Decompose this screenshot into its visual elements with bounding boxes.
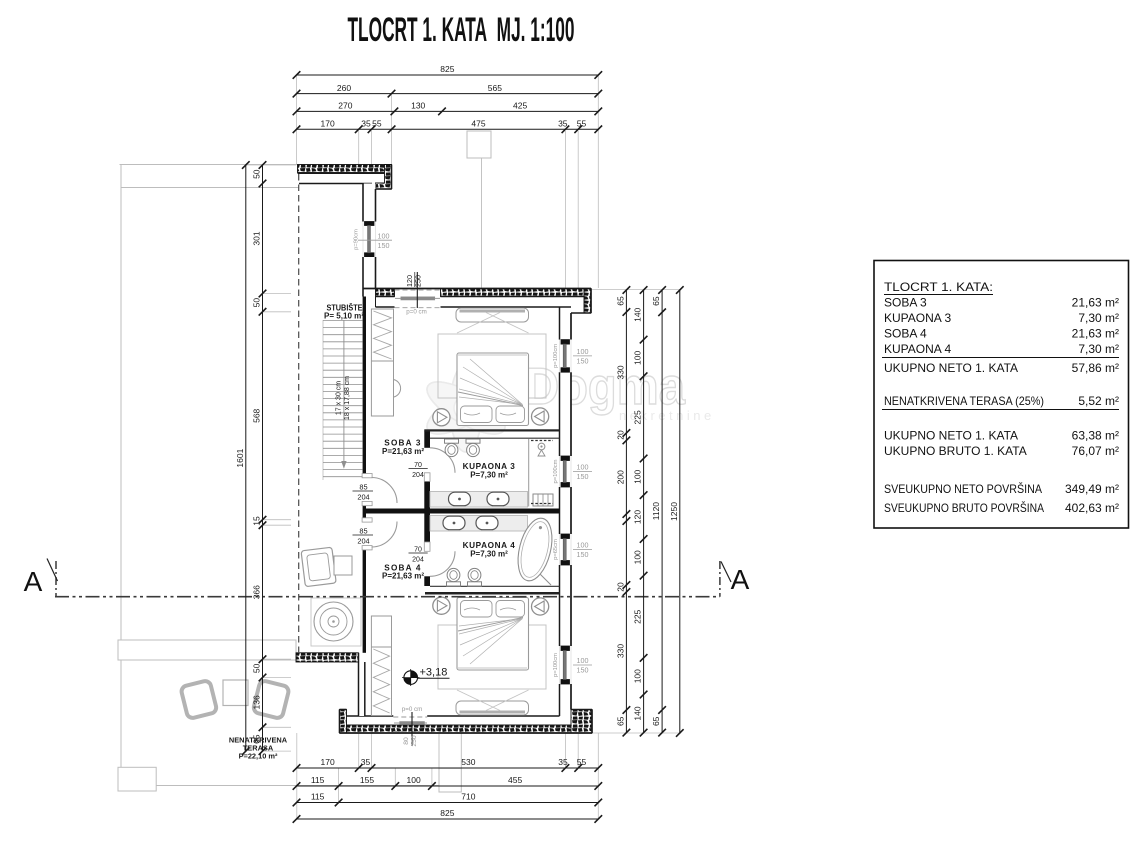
- svg-text:115: 115: [311, 775, 325, 785]
- svg-text:825: 825: [440, 64, 454, 74]
- svg-text:115: 115: [311, 792, 325, 802]
- svg-text:100: 100: [378, 231, 390, 240]
- svg-text:140: 140: [633, 706, 643, 720]
- svg-text:565: 565: [488, 83, 502, 93]
- svg-text:p=100cm: p=100cm: [553, 459, 559, 483]
- svg-text:SOBA 4: SOBA 4: [884, 327, 927, 341]
- svg-text:100: 100: [577, 656, 589, 665]
- svg-text:50: 50: [252, 169, 262, 179]
- svg-text:366: 366: [252, 585, 262, 599]
- svg-text:+3,18: +3,18: [420, 667, 448, 679]
- svg-text:p=100cm: p=100cm: [553, 344, 559, 368]
- svg-text:1601: 1601: [235, 448, 245, 467]
- svg-text:120: 120: [633, 510, 643, 524]
- svg-text:402,63 m²: 402,63 m²: [1065, 501, 1119, 515]
- svg-text:35: 35: [558, 119, 568, 129]
- svg-text:65: 65: [651, 296, 661, 306]
- svg-text:120: 120: [405, 275, 414, 287]
- svg-text:15: 15: [252, 516, 262, 526]
- svg-text:63,38 m²: 63,38 m²: [1072, 429, 1119, 443]
- svg-text:55: 55: [577, 119, 587, 129]
- svg-text:136: 136: [252, 695, 262, 709]
- svg-text:100: 100: [577, 541, 589, 550]
- svg-text:p=0 cm: p=0 cm: [402, 706, 422, 713]
- svg-text:UKUPNO BRUTO 1. KATA: UKUPNO BRUTO 1. KATA: [884, 444, 1027, 458]
- svg-text:KUPAONA 3: KUPAONA 3: [884, 311, 951, 325]
- svg-text:55: 55: [577, 757, 587, 767]
- svg-text:7,30 m²: 7,30 m²: [1078, 342, 1119, 356]
- svg-text:70: 70: [414, 547, 422, 554]
- svg-text:35: 35: [361, 757, 371, 767]
- svg-text:204: 204: [412, 472, 424, 479]
- svg-text:UKUPNO NETO 1. KATA: UKUPNO NETO 1. KATA: [884, 361, 1018, 375]
- svg-text:455: 455: [508, 775, 522, 785]
- svg-text:p=90cm: p=90cm: [354, 229, 360, 250]
- svg-text:85: 85: [359, 527, 367, 536]
- svg-text:170: 170: [321, 119, 335, 129]
- svg-text:330: 330: [615, 644, 625, 658]
- svg-text:150: 150: [577, 550, 589, 559]
- svg-text:568: 568: [252, 408, 262, 422]
- svg-text:100: 100: [633, 550, 643, 564]
- svg-text:130: 130: [411, 101, 425, 111]
- svg-text:270: 270: [338, 101, 352, 111]
- svg-text:330: 330: [615, 365, 625, 379]
- svg-text:A: A: [24, 566, 43, 597]
- svg-text:20: 20: [615, 430, 625, 440]
- svg-text:150: 150: [577, 472, 589, 481]
- svg-text:P=7,30 m²: P=7,30 m²: [470, 550, 508, 559]
- svg-text:35: 35: [558, 757, 568, 767]
- svg-text:530: 530: [461, 757, 475, 767]
- svg-text:p=0 cm: p=0 cm: [406, 309, 426, 316]
- svg-text:SOBA 3: SOBA 3: [884, 296, 927, 310]
- svg-text:1250: 1250: [669, 502, 679, 521]
- svg-text:100: 100: [577, 347, 589, 356]
- svg-text:100: 100: [633, 669, 643, 683]
- svg-text:KUPAONA 4: KUPAONA 4: [884, 342, 951, 356]
- svg-text:50: 50: [252, 298, 262, 308]
- svg-text:p=65cm: p=65cm: [553, 539, 559, 560]
- svg-text:P=21,63 m²: P=21,63 m²: [382, 447, 424, 456]
- svg-text:250: 250: [411, 735, 418, 747]
- svg-text:70: 70: [414, 462, 422, 469]
- svg-text:150: 150: [577, 666, 589, 675]
- svg-text:76,07 m²: 76,07 m²: [1072, 444, 1119, 458]
- svg-text:18 x 17,88 cm: 18 x 17,88 cm: [344, 376, 351, 420]
- svg-text:A: A: [731, 564, 750, 595]
- svg-text:260: 260: [337, 83, 351, 93]
- svg-text:825: 825: [440, 808, 454, 818]
- svg-text:UKUPNO NETO 1. KATA: UKUPNO NETO 1. KATA: [884, 429, 1018, 443]
- svg-text:475: 475: [471, 119, 485, 129]
- svg-text:349,49 m²: 349,49 m²: [1065, 482, 1119, 496]
- svg-text:65: 65: [615, 296, 625, 306]
- svg-text:SVEUKUPNO NETO POVRŠINA: SVEUKUPNO NETO POVRŠINA: [884, 481, 1042, 496]
- svg-text:85: 85: [359, 483, 367, 492]
- svg-text:20: 20: [615, 582, 625, 592]
- svg-text:7,30 m²: 7,30 m²: [1078, 311, 1119, 325]
- svg-text:225: 225: [633, 410, 643, 424]
- svg-text:155: 155: [360, 775, 374, 785]
- svg-text:200: 200: [615, 470, 625, 484]
- svg-text:100: 100: [633, 469, 643, 483]
- svg-text:1120: 1120: [651, 502, 661, 521]
- svg-text:100: 100: [407, 775, 421, 785]
- svg-text:NENATKRIVENA TERASA (25%): NENATKRIVENA TERASA (25%): [884, 394, 1044, 408]
- svg-text:150: 150: [378, 241, 390, 250]
- svg-text:170: 170: [321, 757, 335, 767]
- svg-text:P=21,63 m²: P=21,63 m²: [382, 572, 424, 581]
- svg-text:21,63 m²: 21,63 m²: [1072, 296, 1119, 310]
- svg-text:710: 710: [461, 792, 475, 802]
- svg-text:TLOCRT 1. KATA MJ. 1:100: TLOCRT 1. KATA MJ. 1:100: [348, 11, 575, 49]
- svg-text:225: 225: [633, 609, 643, 623]
- svg-text:65: 65: [615, 716, 625, 726]
- svg-text:140: 140: [633, 307, 643, 321]
- svg-text:100: 100: [633, 351, 643, 365]
- svg-text:P=7,30 m²: P=7,30 m²: [470, 471, 508, 480]
- svg-text:100: 100: [577, 463, 589, 472]
- svg-text:80: 80: [403, 737, 410, 745]
- svg-text:5,52 m²: 5,52 m²: [1078, 394, 1119, 408]
- svg-text:50: 50: [252, 663, 262, 673]
- svg-text:150: 150: [577, 356, 589, 365]
- svg-text:301: 301: [252, 231, 262, 245]
- svg-text:21,63 m²: 21,63 m²: [1072, 327, 1119, 341]
- svg-text:35: 35: [361, 119, 371, 129]
- svg-text:57,86 m²: 57,86 m²: [1072, 361, 1119, 375]
- svg-text:17 x 30 cm: 17 x 30 cm: [336, 381, 343, 415]
- svg-text:65: 65: [651, 716, 661, 726]
- svg-text:65: 65: [252, 734, 262, 744]
- svg-text:P= 5,10 m²: P= 5,10 m²: [324, 312, 364, 321]
- svg-text:p=100cm: p=100cm: [553, 653, 559, 677]
- svg-text:SVEUKUPNO BRUTO POVRŠINA: SVEUKUPNO BRUTO POVRŠINA: [884, 500, 1044, 515]
- svg-text:TLOCRT 1. KATA:: TLOCRT 1. KATA:: [884, 280, 993, 294]
- svg-text:204: 204: [412, 557, 424, 564]
- svg-text:204: 204: [357, 537, 369, 546]
- svg-text:425: 425: [513, 101, 527, 111]
- svg-text:204: 204: [357, 493, 369, 502]
- svg-text:55: 55: [372, 119, 382, 129]
